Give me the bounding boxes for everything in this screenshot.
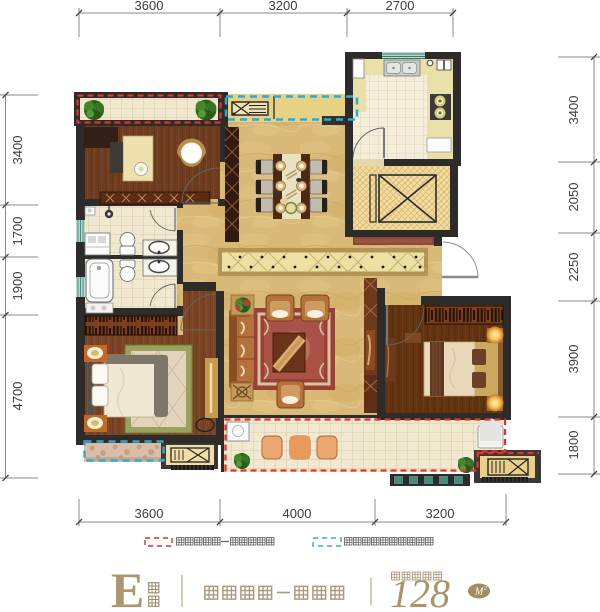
svg-text:M: M — [474, 587, 484, 598]
svg-text:3600: 3600 — [135, 0, 164, 13]
svg-text:4000: 4000 — [283, 506, 312, 521]
svg-text:3900: 3900 — [566, 345, 581, 374]
svg-text:1700: 1700 — [10, 217, 25, 246]
svg-text:3200: 3200 — [269, 0, 298, 13]
svg-text:2700: 2700 — [386, 0, 415, 13]
svg-text:3600: 3600 — [135, 506, 164, 521]
svg-text:1800: 1800 — [566, 431, 581, 460]
svg-text:E: E — [111, 562, 144, 612]
svg-text:128: 128 — [390, 571, 450, 612]
svg-text:3400: 3400 — [10, 136, 25, 165]
svg-text:4700: 4700 — [10, 382, 25, 411]
svg-text:2050: 2050 — [566, 183, 581, 212]
svg-text:1900: 1900 — [10, 272, 25, 301]
svg-text:3200: 3200 — [426, 506, 455, 521]
svg-text:2250: 2250 — [566, 253, 581, 282]
svg-text:2: 2 — [484, 586, 487, 592]
svg-text:3400: 3400 — [566, 96, 581, 125]
